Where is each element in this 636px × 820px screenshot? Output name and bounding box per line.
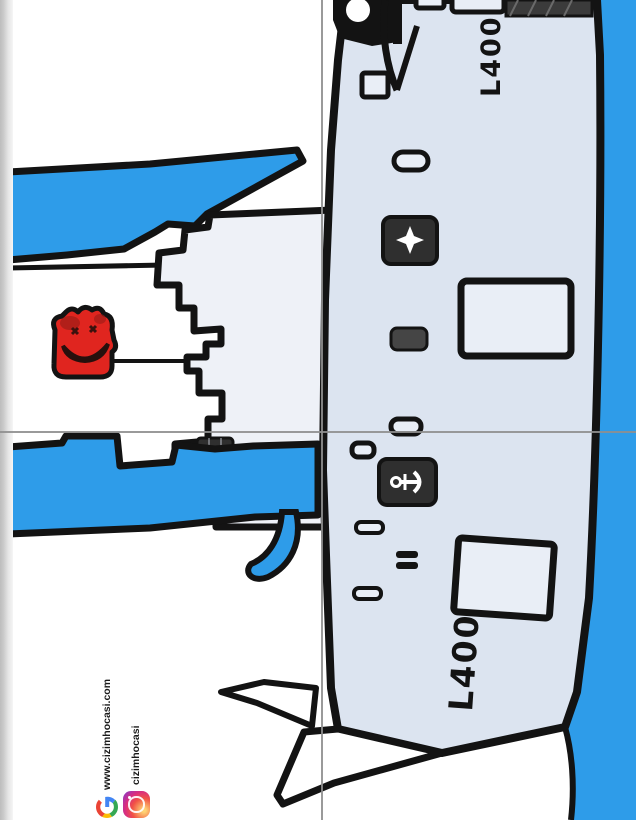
bow-spike [221,682,316,726]
instagram-icon [123,791,150,818]
ramp-door-bottom [454,538,555,619]
door-with-star [383,217,437,264]
fold-guide-horizontal [0,431,636,433]
screenshot-root: L400 L400 www.cizimhocasi.com cizimhocas… [0,0,636,820]
anchor-door [379,459,436,505]
d-fitting [352,443,374,457]
watermark-instagram-handle: cizimhocasi [131,725,142,785]
vent-rect-3 [354,588,381,599]
shore-line [8,265,165,268]
porthole [394,152,428,170]
google-icon [96,796,118,818]
red-mascot [54,307,116,377]
fold-guide-vertical [321,0,323,820]
watermark: www.cizimhocasi.com cizimhocasi [96,600,150,818]
watermark-website: www.cizimhocasi.com [102,679,113,790]
water-band-lower [8,436,318,534]
ramp-door-top [461,281,571,356]
dark-hatch-rect [391,328,427,350]
page-edge-shadow [0,0,13,820]
pennant-number-bottom: L400 [441,612,487,712]
deck-hatch [362,73,388,97]
watermark-instagram-row: cizimhocasi [123,600,150,818]
pennant-number-top: L400 [476,15,507,97]
vent-rect-2 [356,522,383,533]
watermark-website-row: www.cizimhocasi.com [96,600,118,818]
